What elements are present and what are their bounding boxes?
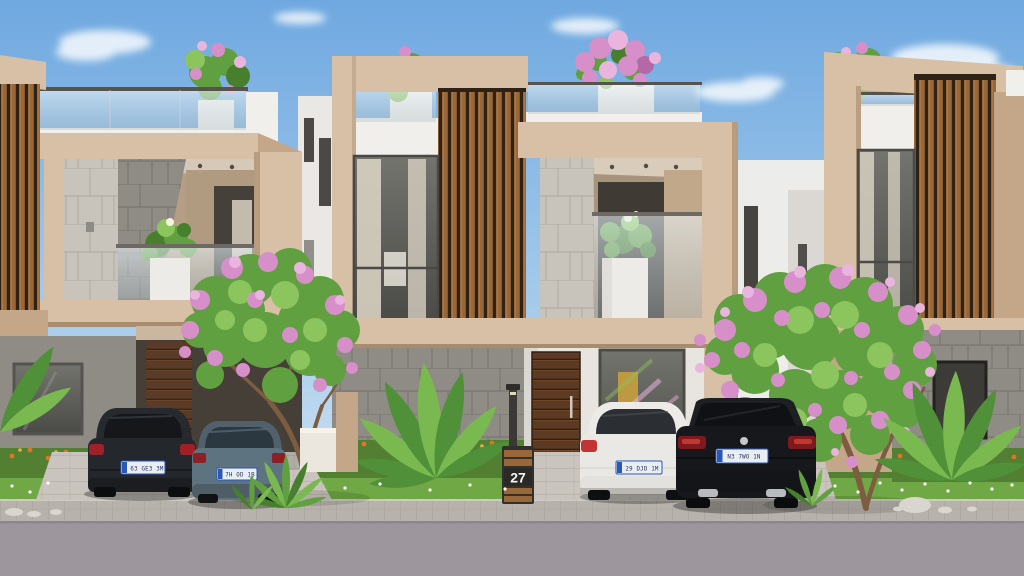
- entrance-door: [532, 352, 580, 464]
- small-window: [304, 118, 314, 162]
- license-plate-text: 63 GE3 3M: [130, 467, 164, 473]
- tail-light: [89, 444, 104, 455]
- tail-light: [272, 453, 285, 463]
- wood-slat-pillar: [0, 84, 40, 330]
- license-plate: 63 GE3 3M: [121, 461, 165, 474]
- small-window: [744, 206, 758, 292]
- car-black-hatchback: 63 GE3 3M: [84, 408, 200, 501]
- license-plate-text: 29 DJD 1M: [625, 467, 659, 473]
- brand-badge: [740, 437, 748, 445]
- wood-slat-column: [438, 92, 526, 322]
- license-plate-text: N3 7WO 1N: [727, 455, 761, 461]
- exhaust-tip: [698, 489, 718, 497]
- tail-light: [193, 453, 206, 463]
- exhaust-tip: [766, 489, 786, 497]
- wood-slat-column: [914, 80, 996, 322]
- road: [0, 521, 1024, 576]
- small-window: [319, 138, 331, 206]
- license-plate-text: 7H OD 1B: [225, 473, 255, 479]
- bollard-light: [510, 392, 516, 395]
- tail-light: [180, 444, 195, 455]
- license-plate: N3 7WO 1N: [716, 449, 768, 463]
- balcony-planter: [150, 258, 190, 302]
- architectural-render: 63 GE3 3M 7H OD 1B: [0, 0, 1024, 576]
- license-plate: 29 DJD 1M: [616, 461, 662, 474]
- tail-light: [581, 440, 597, 452]
- house-number: 27: [510, 470, 526, 486]
- bedroom-window: [354, 156, 438, 322]
- floor-slab: [332, 318, 738, 346]
- roof-glass-railing: [38, 90, 246, 130]
